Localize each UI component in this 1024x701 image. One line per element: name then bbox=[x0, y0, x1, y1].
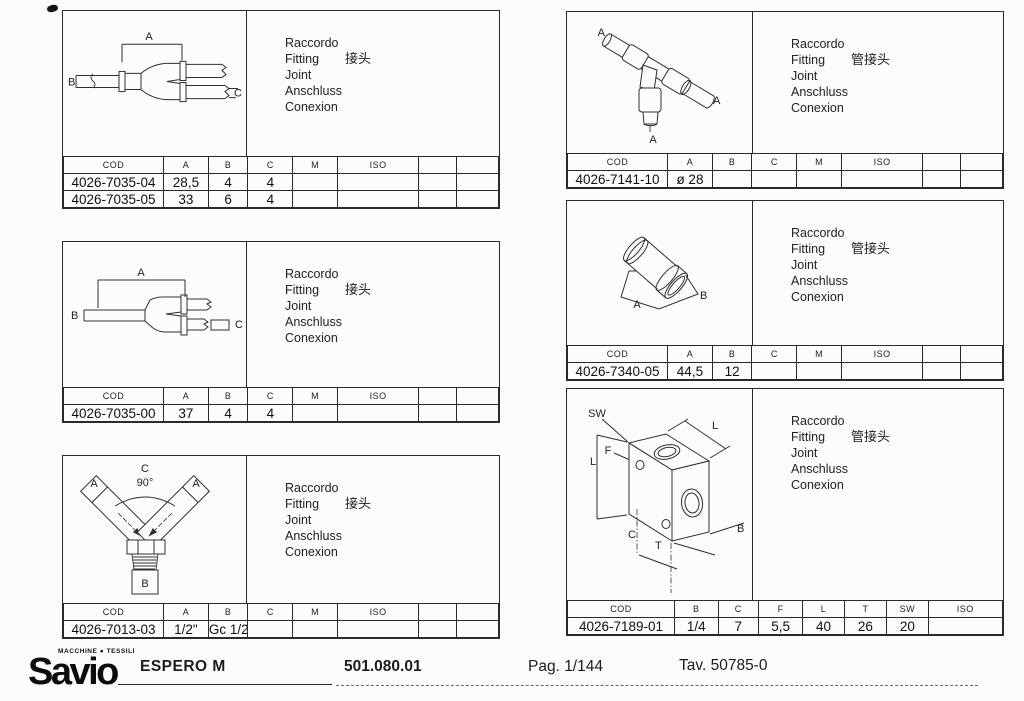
caption-line: Raccordo bbox=[791, 413, 1003, 429]
spec-col-header: M bbox=[293, 388, 338, 405]
caption-fr: Joint bbox=[285, 513, 311, 527]
dim-value: 4 bbox=[208, 405, 248, 422]
spec-col-header: C bbox=[752, 154, 797, 171]
caption-it: Raccordo bbox=[791, 37, 845, 51]
technical-drawing: SW L F L C T B bbox=[567, 389, 752, 600]
spec-row: 4026-7013-031/2"Gc 1/2" bbox=[64, 621, 499, 638]
spec-col-header: COD bbox=[568, 346, 668, 363]
caption-es: Conexion bbox=[791, 478, 844, 492]
dim-value bbox=[338, 191, 419, 208]
technical-drawing: C 90° A A B bbox=[63, 456, 246, 603]
dim-value bbox=[419, 405, 457, 422]
footer: MACCHINE ● TESSILI Savio ESPERO M 501.08… bbox=[0, 644, 1024, 701]
spec-col-header bbox=[961, 346, 1003, 363]
caption-line: Joint bbox=[791, 445, 1003, 461]
spec-col-header: L bbox=[803, 601, 844, 618]
dim-value: 7 bbox=[718, 618, 758, 635]
dim-label-a: A bbox=[90, 478, 98, 490]
caption-fr: Joint bbox=[285, 299, 311, 313]
dim-value bbox=[961, 363, 1003, 380]
dim-label-b: B bbox=[71, 310, 78, 322]
part-panel-4026-7340: A B Raccordo Fitting管接头 Joint Anschluss … bbox=[566, 200, 1004, 381]
spec-col-header: COD bbox=[64, 388, 164, 405]
caption-en: Fitting bbox=[285, 52, 319, 66]
dim-value bbox=[248, 621, 293, 638]
caption-line: Conexion bbox=[285, 99, 499, 115]
spec-col-header: A bbox=[668, 346, 713, 363]
dim-label-c: C bbox=[141, 463, 149, 475]
dim-value bbox=[293, 191, 338, 208]
caption-line: Conexion bbox=[285, 544, 499, 560]
spec-col-header bbox=[961, 154, 1003, 171]
spec-col-header: B bbox=[675, 601, 719, 618]
spec-col-header: C bbox=[752, 346, 797, 363]
catalog-page: A B C Raccordo Fitting接头 Joint Anschluss… bbox=[0, 0, 1024, 701]
dim-value: 44,5 bbox=[668, 363, 713, 380]
dim-label-a: A bbox=[633, 299, 641, 311]
caption-it: Raccordo bbox=[285, 267, 339, 281]
dim-label-a: A bbox=[145, 31, 153, 43]
caption-de: Anschluss bbox=[791, 462, 848, 476]
spec-col-header: C bbox=[248, 604, 293, 621]
spec-col-header: M bbox=[293, 604, 338, 621]
caption-line: Fitting接头 bbox=[285, 282, 499, 298]
scan-artifact bbox=[46, 4, 58, 13]
caption-line: Fitting接头 bbox=[285, 51, 499, 67]
technical-drawing: A A A bbox=[567, 12, 752, 153]
caption-de: Anschluss bbox=[285, 315, 342, 329]
caption-it: Raccordo bbox=[791, 414, 845, 428]
spec-table: CODBCFLTSWISO4026-7189-011/475,5402620 bbox=[567, 600, 1003, 635]
dim-value bbox=[923, 171, 961, 188]
spec-header-row: CODBCFLTSWISO bbox=[568, 601, 1003, 618]
dim-value: 1/2" bbox=[164, 621, 209, 638]
dim-label-f: F bbox=[605, 445, 612, 457]
technical-drawing: A B C bbox=[63, 11, 246, 156]
dim-value bbox=[923, 363, 961, 380]
spec-row: 4026-7141-10ø 28 bbox=[568, 171, 1003, 188]
caption-zh: 管接头 bbox=[851, 52, 890, 68]
caption-line: Joint bbox=[285, 512, 499, 528]
caption-en: Fitting bbox=[791, 53, 825, 67]
dim-label-l: L bbox=[712, 420, 718, 432]
caption-block: Raccordo Fitting管接头 Joint Anschluss Cone… bbox=[752, 12, 1003, 153]
caption-line: Joint bbox=[285, 298, 499, 314]
dim-value: 5,5 bbox=[758, 618, 802, 635]
caption-line: Raccordo bbox=[285, 480, 499, 496]
spec-col-header: C bbox=[718, 601, 758, 618]
dim-value: 4 bbox=[248, 174, 293, 191]
dim-value: 12 bbox=[712, 363, 752, 380]
spec-col-header: COD bbox=[568, 154, 668, 171]
dim-value bbox=[752, 171, 797, 188]
dim-label-l: L bbox=[590, 456, 596, 468]
caption-line: Conexion bbox=[791, 289, 1003, 305]
dim-value: 4 bbox=[248, 191, 293, 208]
dim-label-a: A bbox=[598, 27, 606, 39]
caption-line: Fitting管接头 bbox=[791, 429, 1003, 445]
dim-label-b: B bbox=[141, 578, 148, 590]
table-number: Tav. 50785-0 bbox=[679, 657, 767, 675]
dim-label-b: B bbox=[737, 523, 744, 535]
spec-col-header bbox=[419, 604, 457, 621]
dim-value bbox=[419, 174, 457, 191]
caption-zh: 接头 bbox=[345, 496, 371, 512]
caption-en: Fitting bbox=[285, 283, 319, 297]
dim-value bbox=[752, 363, 797, 380]
caption-zh: 管接头 bbox=[851, 241, 890, 257]
caption-fr: Joint bbox=[791, 258, 817, 272]
dim-value bbox=[338, 174, 419, 191]
spec-col-header: ISO bbox=[338, 157, 419, 174]
spec-col-header: M bbox=[293, 157, 338, 174]
dim-value bbox=[293, 621, 338, 638]
spec-col-header: SW bbox=[887, 601, 928, 618]
caption-zh: 接头 bbox=[345, 282, 371, 298]
caption-block: Raccordo Fitting管接头 Joint Anschluss Cone… bbox=[752, 201, 1003, 345]
caption-line: Conexion bbox=[285, 330, 499, 346]
spec-col-header: COD bbox=[64, 157, 164, 174]
part-panel-4026-7141: A A A Raccordo Fitting管接头 Joint Anschlus… bbox=[566, 11, 1004, 189]
spec-col-header: F bbox=[758, 601, 802, 618]
spec-col-header: A bbox=[164, 157, 209, 174]
dim-value: 1/4 bbox=[675, 618, 719, 635]
page-number: Pag. 1/144 bbox=[528, 658, 603, 676]
spec-col-header: B bbox=[712, 154, 752, 171]
caption-de: Anschluss bbox=[791, 85, 848, 99]
spec-col-header: ISO bbox=[842, 346, 923, 363]
dim-value bbox=[457, 174, 499, 191]
spec-col-header: B bbox=[712, 346, 752, 363]
dim-value: Gc 1/2" bbox=[208, 621, 248, 638]
dim-value: 40 bbox=[803, 618, 844, 635]
dim-value bbox=[842, 171, 923, 188]
caption-fr: Joint bbox=[791, 69, 817, 83]
spec-header-row: CODABCMISO bbox=[64, 157, 499, 174]
dim-value bbox=[293, 174, 338, 191]
dim-value: ø 28 bbox=[668, 171, 713, 188]
caption-es: Conexion bbox=[285, 100, 338, 114]
caption-de: Anschluss bbox=[285, 84, 342, 98]
part-code: 4026-7189-01 bbox=[568, 618, 675, 635]
dim-value bbox=[797, 171, 842, 188]
spec-col-header bbox=[457, 157, 499, 174]
spec-table: CODABCMISO4026-7035-0428,5444026-7035-05… bbox=[63, 156, 499, 208]
dim-label-a: A bbox=[192, 478, 200, 490]
dim-value: 33 bbox=[164, 191, 209, 208]
savio-logo: MACCHINE ● TESSILI Savio bbox=[28, 648, 148, 689]
dim-label-c: C bbox=[235, 319, 243, 331]
spec-row: 4026-7035-053364 bbox=[64, 191, 499, 208]
dim-label-sw: SW bbox=[588, 408, 606, 420]
spec-header-row: CODABCMISO bbox=[64, 604, 499, 621]
dim-label-a: A bbox=[713, 95, 721, 107]
part-panel-4026-7035-00: A B C Raccordo Fitting接头 Joint Anschluss… bbox=[62, 241, 500, 423]
spec-col-header: A bbox=[668, 154, 713, 171]
machine-name: ESPERO M bbox=[140, 658, 226, 676]
technical-drawing: A B bbox=[567, 201, 752, 345]
part-code: 4026-7141-10 bbox=[568, 171, 668, 188]
spec-row: 4026-7340-0544,512 bbox=[568, 363, 1003, 380]
spec-row: 4026-7189-011/475,5402620 bbox=[568, 618, 1003, 635]
spec-col-header bbox=[457, 388, 499, 405]
caption-es: Conexion bbox=[285, 545, 338, 559]
caption-es: Conexion bbox=[791, 290, 844, 304]
dim-value bbox=[293, 405, 338, 422]
spec-table: CODABCMISO4026-7035-003744 bbox=[63, 387, 499, 422]
dim-value: 20 bbox=[887, 618, 928, 635]
caption-it: Raccordo bbox=[285, 481, 339, 495]
spec-col-header: ISO bbox=[338, 388, 419, 405]
caption-line: Raccordo bbox=[791, 36, 1003, 52]
dim-value bbox=[928, 618, 1002, 635]
dim-value bbox=[797, 363, 842, 380]
caption-fr: Joint bbox=[285, 68, 311, 82]
dim-value bbox=[842, 363, 923, 380]
dim-value bbox=[712, 171, 752, 188]
spec-col-header: COD bbox=[568, 601, 675, 618]
footer-rule bbox=[118, 684, 332, 685]
dim-value: 26 bbox=[844, 618, 887, 635]
dim-value: 6 bbox=[208, 191, 248, 208]
caption-line: Anschluss bbox=[285, 528, 499, 544]
caption-line: Anschluss bbox=[791, 461, 1003, 477]
caption-block: Raccordo Fitting接头 Joint Anschluss Conex… bbox=[246, 11, 499, 156]
dim-label-t: T bbox=[655, 540, 662, 552]
caption-en: Fitting bbox=[285, 497, 319, 511]
dim-value bbox=[338, 621, 419, 638]
dim-value bbox=[457, 621, 499, 638]
spec-col-header: ISO bbox=[928, 601, 1002, 618]
caption-line: Joint bbox=[285, 67, 499, 83]
part-code: 4026-7340-05 bbox=[568, 363, 668, 380]
part-panel-4026-7013: C 90° A A B Raccordo Fitting接头 Joint Ans… bbox=[62, 455, 500, 639]
caption-line: Fitting接头 bbox=[285, 496, 499, 512]
caption-fr: Joint bbox=[791, 446, 817, 460]
dim-label-b: B bbox=[68, 76, 75, 88]
spec-col-header bbox=[419, 388, 457, 405]
dim-label-b: B bbox=[700, 290, 707, 302]
caption-line: Fitting管接头 bbox=[791, 52, 1003, 68]
footer-rule-dashed bbox=[336, 685, 978, 686]
caption-line: Anschluss bbox=[285, 83, 499, 99]
caption-es: Conexion bbox=[285, 331, 338, 345]
spec-header-row: CODABCMISO bbox=[568, 346, 1003, 363]
caption-line: Joint bbox=[791, 68, 1003, 84]
dim-value: 4 bbox=[208, 174, 248, 191]
part-code: 4026-7035-05 bbox=[64, 191, 164, 208]
spec-col-header bbox=[923, 346, 961, 363]
spec-col-header: C bbox=[248, 157, 293, 174]
caption-it: Raccordo bbox=[285, 36, 339, 50]
dim-label-a: A bbox=[137, 267, 145, 279]
spec-col-header: M bbox=[797, 346, 842, 363]
spec-col-header: ISO bbox=[842, 154, 923, 171]
caption-zh: 接头 bbox=[345, 51, 371, 67]
caption-line: Anschluss bbox=[791, 273, 1003, 289]
dim-value bbox=[457, 405, 499, 422]
dim-value bbox=[961, 171, 1003, 188]
document-code: 501.080.01 bbox=[344, 658, 422, 676]
caption-block: Raccordo Fitting管接头 Joint Anschluss Cone… bbox=[752, 389, 1003, 600]
spec-col-header: ISO bbox=[338, 604, 419, 621]
caption-line: Raccordo bbox=[791, 225, 1003, 241]
spec-col-header bbox=[923, 154, 961, 171]
part-panel-4026-7035: A B C Raccordo Fitting接头 Joint Anschluss… bbox=[62, 10, 500, 209]
spec-col-header bbox=[419, 157, 457, 174]
angle-label: 90° bbox=[137, 477, 154, 489]
caption-block: Raccordo Fitting接头 Joint Anschluss Conex… bbox=[246, 456, 499, 603]
spec-col-header: C bbox=[248, 388, 293, 405]
caption-line: Fitting管接头 bbox=[791, 241, 1003, 257]
caption-de: Anschluss bbox=[285, 529, 342, 543]
dim-value bbox=[338, 405, 419, 422]
part-code: 4026-7013-03 bbox=[64, 621, 164, 638]
caption-line: Conexion bbox=[791, 477, 1003, 493]
caption-line: Joint bbox=[791, 257, 1003, 273]
dim-value: 4 bbox=[248, 405, 293, 422]
spec-col-header: COD bbox=[64, 604, 164, 621]
caption-en: Fitting bbox=[791, 430, 825, 444]
technical-drawing: A B C bbox=[63, 242, 246, 387]
part-code: 4026-7035-04 bbox=[64, 174, 164, 191]
part-code: 4026-7035-00 bbox=[64, 405, 164, 422]
spec-header-row: CODABCMISO bbox=[64, 388, 499, 405]
spec-table: CODABCMISO4026-7013-031/2"Gc 1/2" bbox=[63, 603, 499, 638]
dim-label-c: C bbox=[234, 88, 242, 100]
spec-row: 4026-7035-003744 bbox=[64, 405, 499, 422]
caption-it: Raccordo bbox=[791, 226, 845, 240]
spec-col-header: B bbox=[208, 604, 248, 621]
spec-row: 4026-7035-0428,544 bbox=[64, 174, 499, 191]
dim-value: 28,5 bbox=[164, 174, 209, 191]
caption-zh: 管接头 bbox=[851, 429, 890, 445]
spec-col-header: A bbox=[164, 604, 209, 621]
caption-line: Anschluss bbox=[285, 314, 499, 330]
dim-label-c: C bbox=[628, 529, 636, 541]
dim-label-a: A bbox=[649, 134, 657, 146]
spec-header-row: CODABCMISO bbox=[568, 154, 1003, 171]
caption-line: Conexion bbox=[791, 100, 1003, 116]
caption-es: Conexion bbox=[791, 101, 844, 115]
caption-de: Anschluss bbox=[791, 274, 848, 288]
caption-line: Raccordo bbox=[285, 35, 499, 51]
spec-table: CODABCMISO4026-7141-10ø 28 bbox=[567, 153, 1003, 188]
spec-col-header: B bbox=[208, 157, 248, 174]
spec-table: CODABCMISO4026-7340-0544,512 bbox=[567, 345, 1003, 380]
spec-col-header: M bbox=[797, 154, 842, 171]
part-panel-4026-7189: SW L F L C T B Raccordo Fitting管接头 Joint… bbox=[566, 388, 1004, 636]
dim-value bbox=[457, 191, 499, 208]
spec-col-header bbox=[457, 604, 499, 621]
dim-value bbox=[419, 191, 457, 208]
dim-value bbox=[419, 621, 457, 638]
caption-line: Raccordo bbox=[285, 266, 499, 282]
caption-block: Raccordo Fitting接头 Joint Anschluss Conex… bbox=[246, 242, 499, 387]
spec-col-header: B bbox=[208, 388, 248, 405]
spec-col-header: A bbox=[164, 388, 209, 405]
caption-en: Fitting bbox=[791, 242, 825, 256]
caption-line: Anschluss bbox=[791, 84, 1003, 100]
spec-col-header: T bbox=[844, 601, 887, 618]
dim-value: 37 bbox=[164, 405, 209, 422]
